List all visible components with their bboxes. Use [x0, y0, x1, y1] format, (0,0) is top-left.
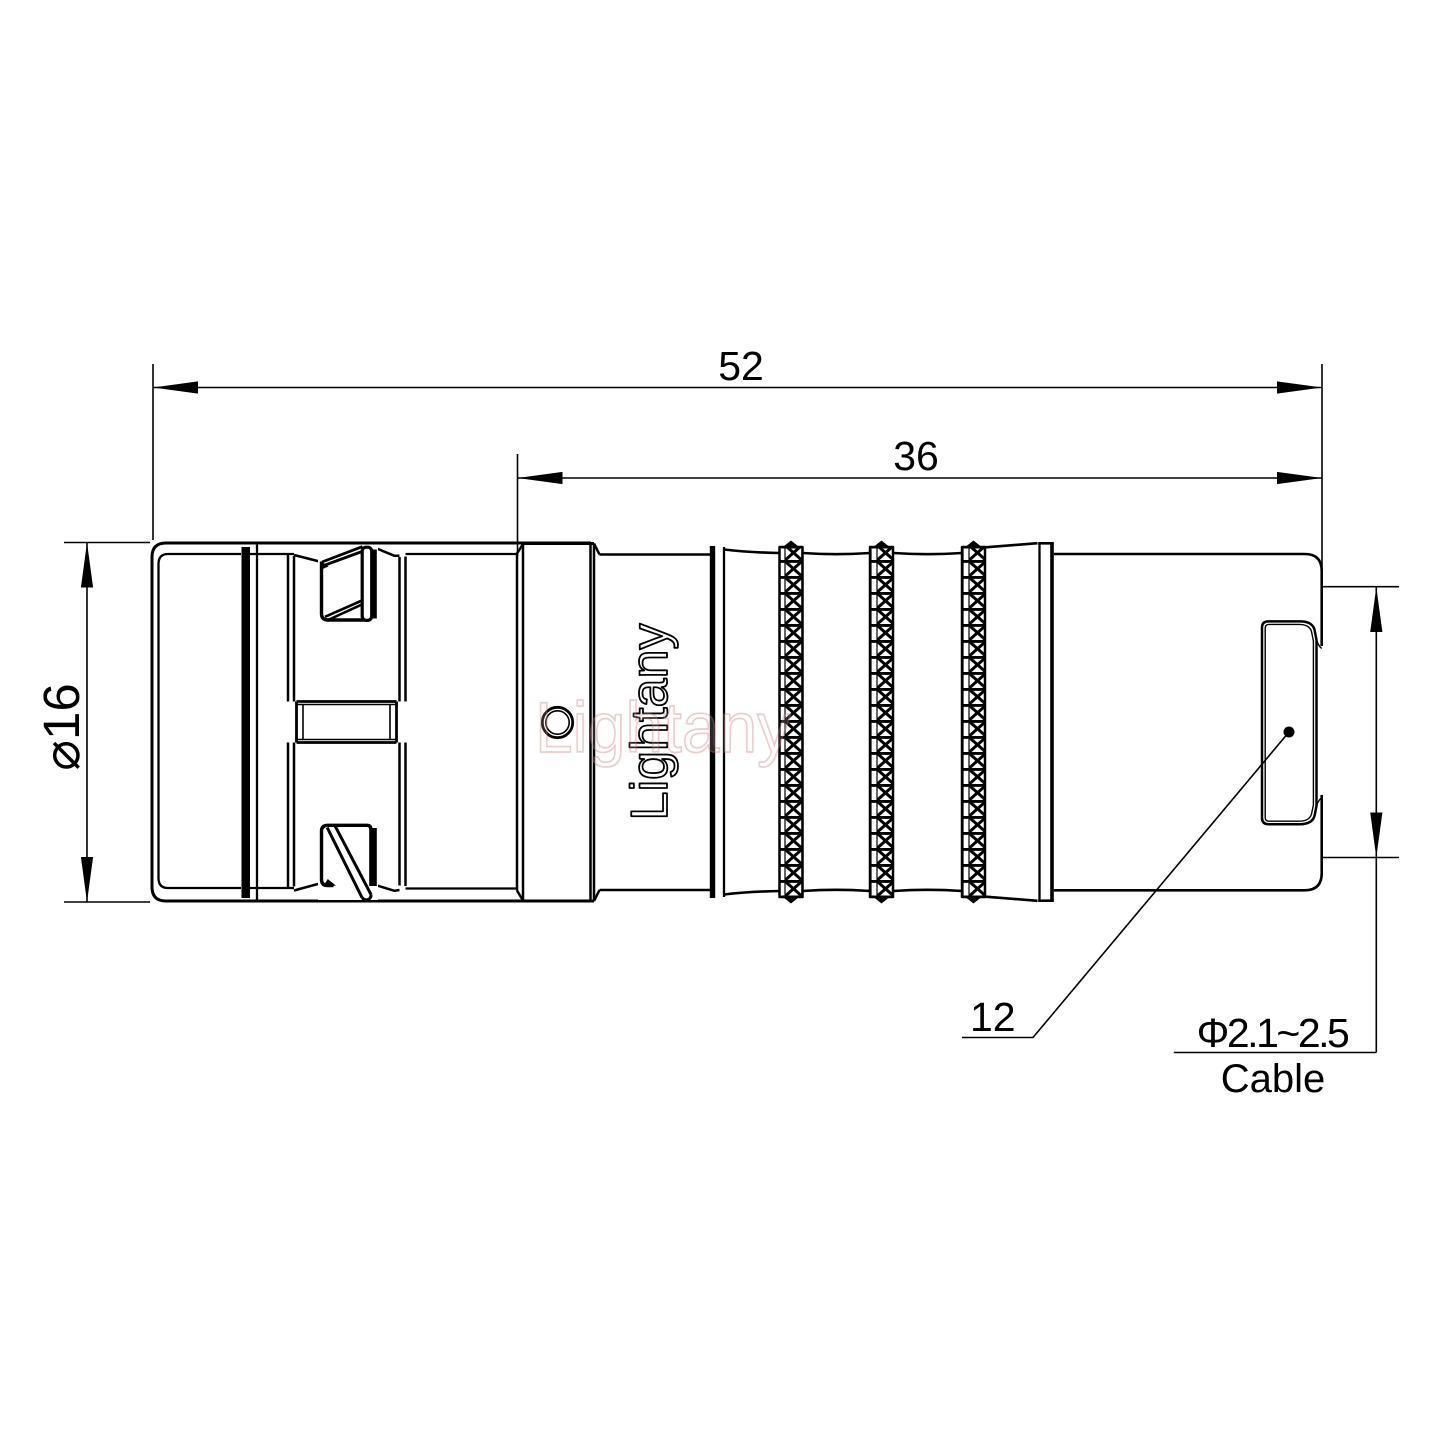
svg-text:36: 36	[893, 433, 939, 479]
svg-text:⌀16: ⌀16	[33, 683, 90, 770]
svg-text:12: 12	[970, 994, 1016, 1040]
svg-text:Lightany: Lightany	[535, 689, 791, 768]
svg-text:Cable: Cable	[1221, 1057, 1326, 1101]
svg-text:Φ2.1~2.5: Φ2.1~2.5	[1197, 1010, 1349, 1056]
svg-text:52: 52	[718, 343, 764, 389]
